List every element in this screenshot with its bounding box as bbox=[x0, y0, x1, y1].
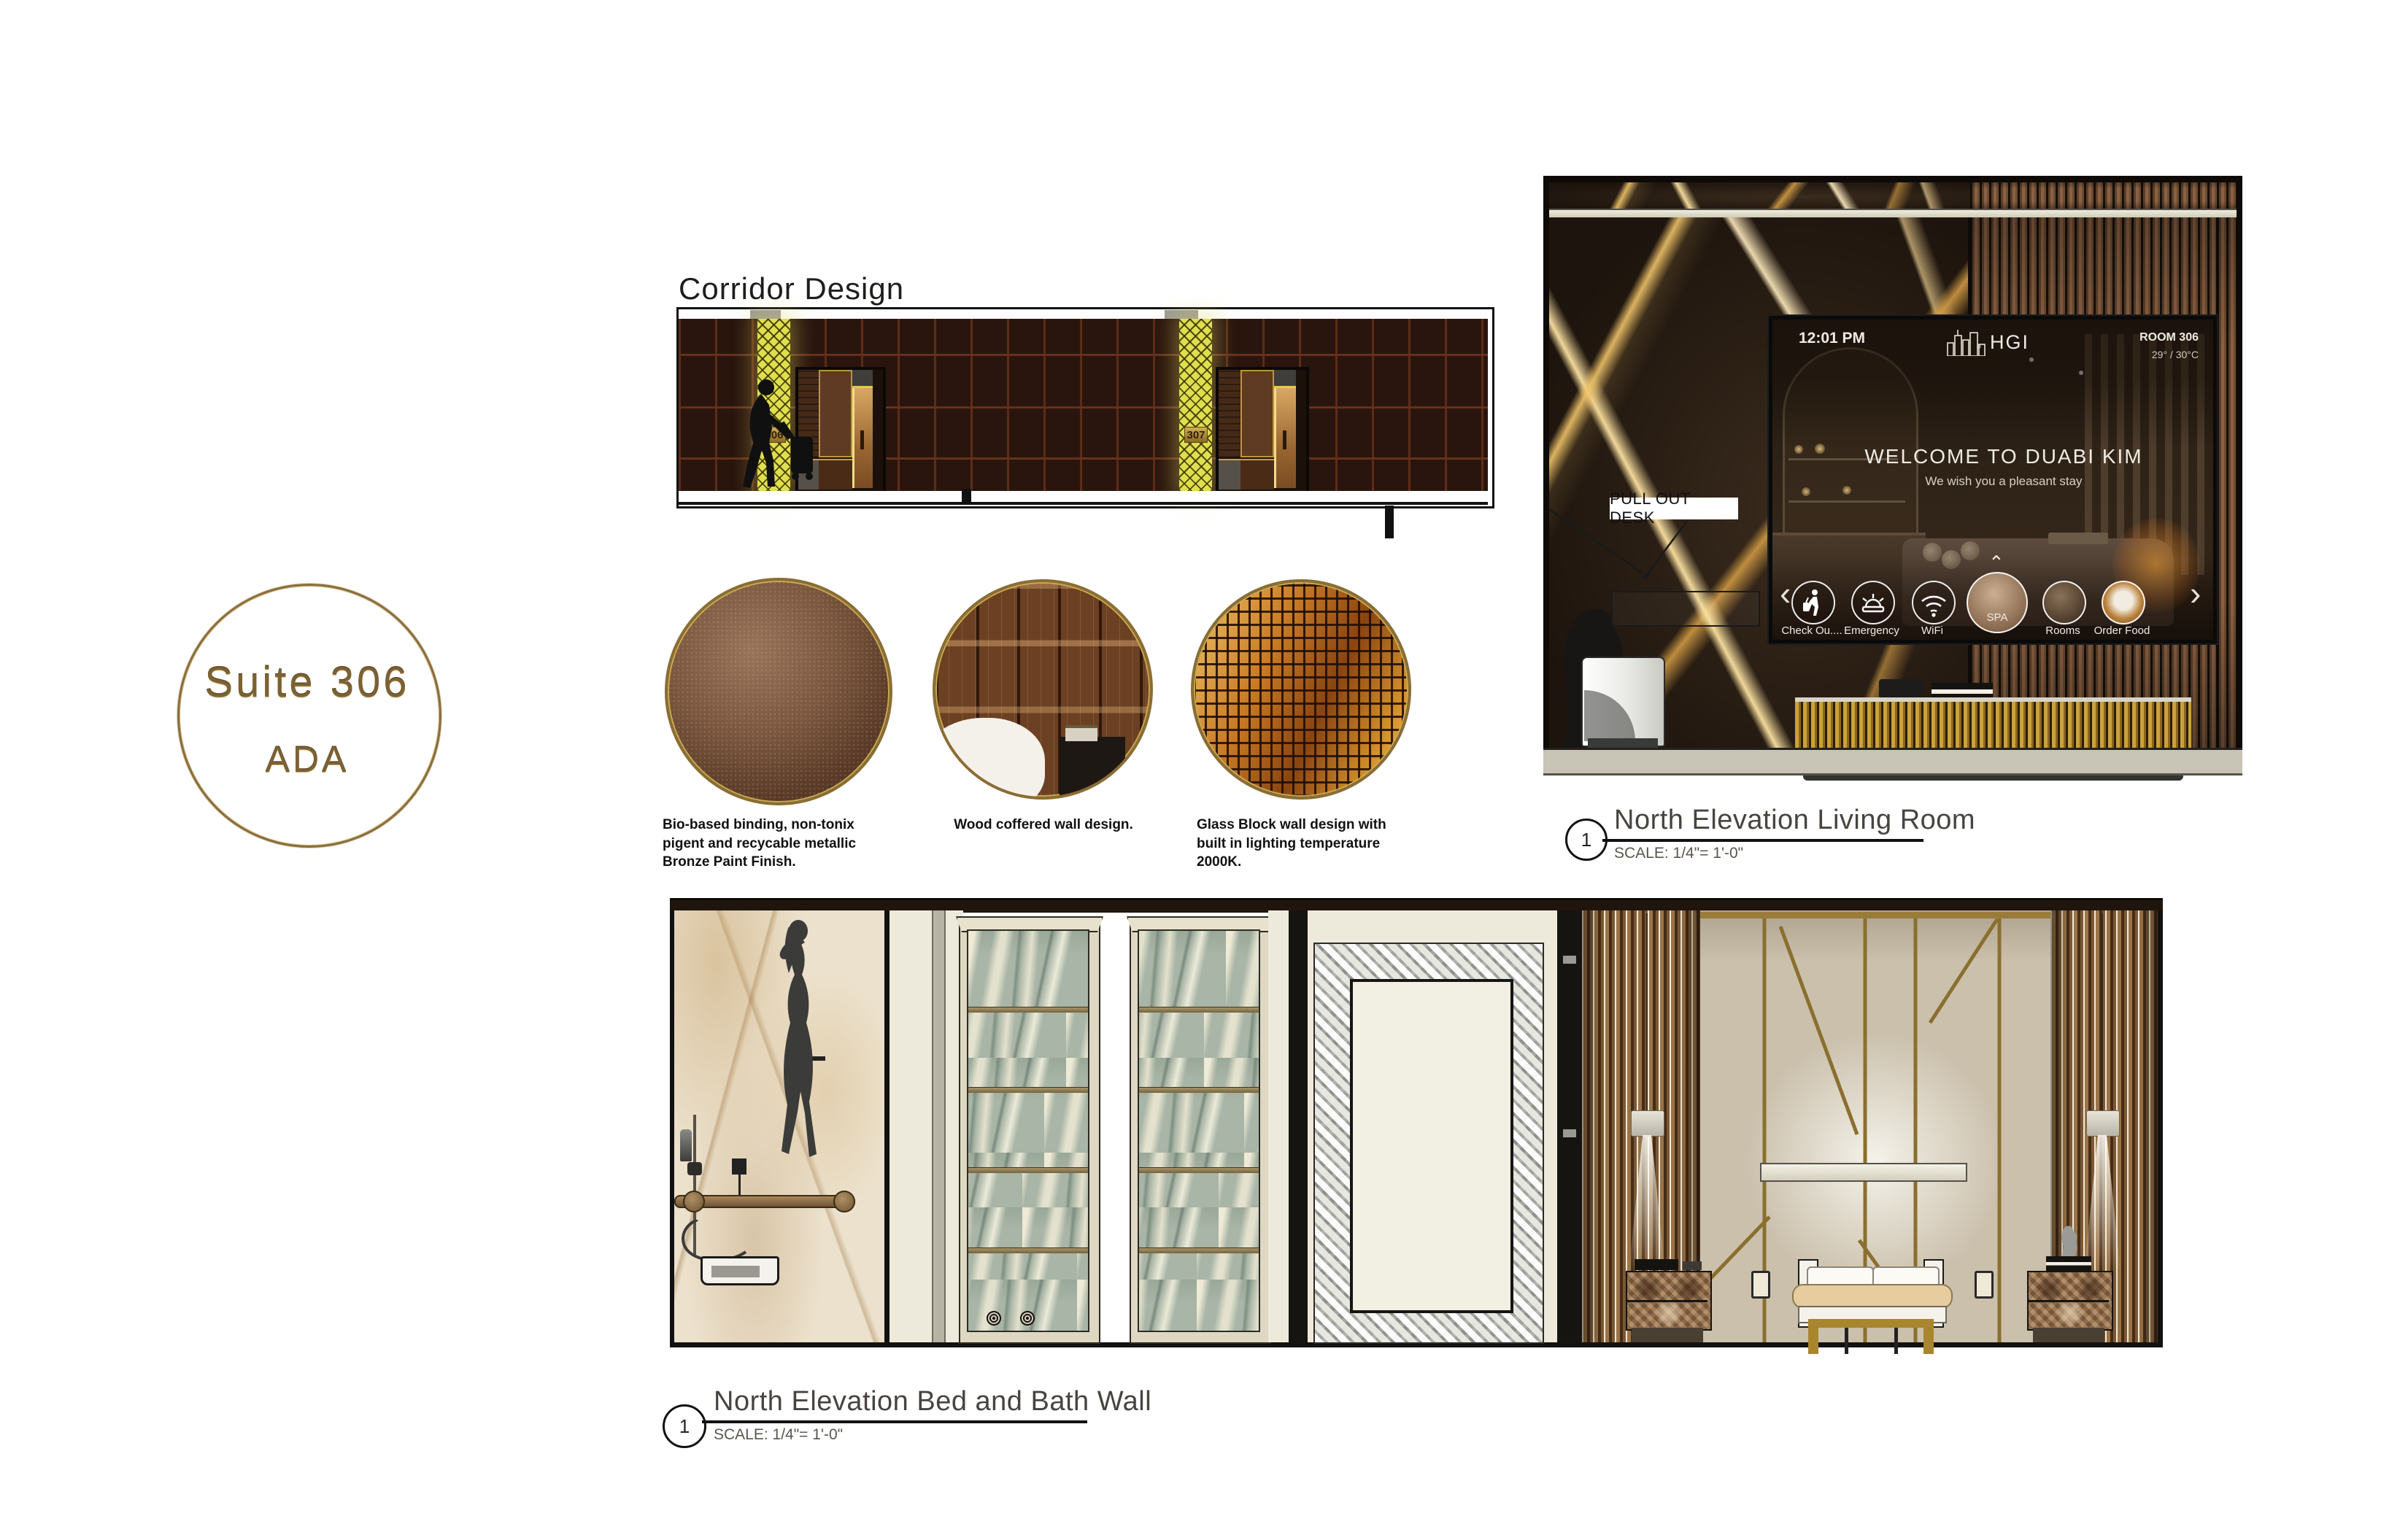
door-transom bbox=[1274, 370, 1296, 388]
menu-wifi-button[interactable] bbox=[1912, 581, 1956, 624]
panel-crown bbox=[956, 916, 1103, 932]
door-kick-left bbox=[1219, 459, 1240, 490]
bed-bath-drawing-number: 1 bbox=[663, 1404, 706, 1448]
corridor-title: Corridor Design bbox=[679, 271, 904, 306]
wall-divider bbox=[1289, 910, 1308, 1342]
menu-rooms-button[interactable] bbox=[2042, 581, 2086, 624]
shower-control bbox=[732, 1158, 746, 1175]
divider-handle bbox=[1563, 956, 1576, 964]
spa-down-chevron[interactable]: ⌄ bbox=[1988, 629, 2004, 640]
spa-up-chevron[interactable]: ⌃ bbox=[1988, 552, 2004, 574]
drawer-divider bbox=[2029, 1300, 2109, 1302]
green-marble-panel-2 bbox=[1130, 918, 1271, 1344]
bed-bath-title: North Elevation Bed and Bath Wall bbox=[714, 1386, 1151, 1417]
crystal-mirror-frame bbox=[1313, 943, 1544, 1344]
wall-divider bbox=[1557, 910, 1582, 1342]
glass-block-strip-307 bbox=[1179, 319, 1212, 491]
corridor-vent-left bbox=[750, 310, 781, 319]
hotel-skyline-icon bbox=[1945, 327, 1988, 356]
stacked-books bbox=[2046, 1256, 2091, 1271]
callout-arrows bbox=[1540, 487, 1773, 589]
bath-wall-gap bbox=[1268, 910, 1289, 1342]
menu-order-food-label: Order Food bbox=[2091, 624, 2153, 637]
door-sidelite bbox=[1274, 388, 1296, 488]
nightstand-base bbox=[1632, 1328, 1703, 1342]
bed-leg-gold bbox=[1808, 1328, 1818, 1354]
panel-crown bbox=[1127, 916, 1274, 932]
sconce-cord bbox=[2102, 913, 2103, 1110]
walking-guest-silhouette bbox=[721, 376, 838, 494]
bed-leg bbox=[1845, 1328, 1848, 1354]
stacked-books bbox=[1932, 683, 1993, 697]
living-room-drawing-number: 1 bbox=[1565, 819, 1608, 861]
nightstand-shape bbox=[1060, 737, 1125, 797]
living-room-scale: SCALE: 1/4"= 1'-0" bbox=[1614, 845, 1743, 862]
stool-shadow bbox=[1584, 690, 1635, 741]
wifi-icon bbox=[1913, 582, 1954, 623]
marble-slab bbox=[968, 1173, 1088, 1247]
nightstand-left bbox=[1626, 1271, 1712, 1331]
corridor-wall: 306 307 bbox=[679, 319, 1488, 491]
statue-figurine bbox=[2058, 1224, 2078, 1258]
door-stile bbox=[1219, 370, 1240, 457]
bed-leg-gold bbox=[1923, 1328, 1934, 1354]
pillow-shape bbox=[933, 718, 1045, 800]
telephone bbox=[1879, 679, 1924, 697]
door-handle bbox=[1283, 430, 1286, 449]
living-room-title-underline bbox=[1602, 839, 1923, 842]
nightstand-phone bbox=[1683, 1261, 1702, 1270]
floating-ledge bbox=[1760, 1163, 1967, 1182]
green-marble-panel-1 bbox=[959, 918, 1100, 1344]
suite-logo bbox=[177, 584, 441, 848]
suite-logo-line1: Suite 306 bbox=[185, 658, 430, 707]
corridor-vent-right bbox=[1165, 310, 1198, 319]
slat-band bbox=[1970, 182, 2237, 209]
rosette-knob bbox=[986, 1310, 1002, 1326]
books-shape bbox=[1065, 725, 1097, 741]
living-room-title: North Elevation Living Room bbox=[1614, 805, 1975, 836]
rosette-knob bbox=[1019, 1310, 1035, 1326]
menu-order-food-button[interactable] bbox=[2102, 581, 2145, 624]
bath-wall-gap bbox=[890, 910, 963, 1342]
panel-marble bbox=[1139, 931, 1259, 1331]
checkout-icon bbox=[1793, 582, 1834, 623]
living-room-elevation: 12:01 PM HGI ROOM 306 29° / 30°C WELCOME… bbox=[1543, 176, 2242, 773]
marble-slab bbox=[1139, 1253, 1259, 1331]
marble-slab bbox=[968, 931, 1088, 1007]
tv-room-number: ROOM 306 bbox=[2089, 331, 2199, 344]
pull-out-desk-outline bbox=[1611, 591, 1760, 627]
ceiling-band bbox=[1549, 182, 2237, 209]
bed-bolster bbox=[1792, 1284, 1953, 1309]
glass-block-swatch bbox=[1191, 579, 1411, 800]
bathing-silhouette bbox=[756, 915, 842, 1163]
wall-sconce-left bbox=[1631, 1110, 1664, 1137]
drawer-divider bbox=[1627, 1300, 1707, 1302]
switch-plate bbox=[1751, 1271, 1770, 1299]
bed-leg bbox=[1894, 1328, 1898, 1354]
tv-subheadline: We wish you a pleasant stay bbox=[1847, 474, 2161, 489]
menu-emergency-button[interactable] bbox=[1851, 581, 1895, 624]
bed-bath-title-underline bbox=[702, 1420, 1087, 1423]
tv-headline: WELCOME TO DUABI KIM bbox=[1847, 445, 2161, 468]
marble-slab bbox=[1139, 1093, 1259, 1167]
seat-cushion bbox=[711, 1266, 760, 1277]
menu-rooms-label: Rooms bbox=[2032, 624, 2094, 637]
corridor-datum-mark bbox=[1385, 506, 1394, 538]
bed-bath-scale: SCALE: 1/4"= 1'-0" bbox=[714, 1426, 843, 1444]
marble-slab bbox=[1139, 1013, 1259, 1087]
corridor-elevation: 306 307 bbox=[676, 307, 1494, 508]
bed-bath-elevation bbox=[670, 898, 2163, 1347]
suite-307-door bbox=[1216, 367, 1309, 497]
room-number-plaque: 307 bbox=[1184, 427, 1208, 443]
bronze-paint-swatch bbox=[665, 578, 892, 805]
rail-knob bbox=[687, 1162, 702, 1175]
grab-bar-flange bbox=[833, 1191, 855, 1212]
bed-headboard-wall bbox=[1582, 910, 2163, 1342]
corridor-baseboard bbox=[679, 491, 1488, 505]
wood-coffered-caption: Wood coffered wall design. bbox=[941, 816, 1146, 835]
wall-sconce-right bbox=[2086, 1110, 2120, 1137]
shower-onyx-wall bbox=[670, 910, 890, 1342]
bronze-paint-caption: Bio-based binding, non-tonix pigent and … bbox=[663, 816, 890, 872]
door-panel bbox=[1240, 370, 1274, 457]
menu-checkout-button[interactable] bbox=[1791, 581, 1835, 624]
hand-shower bbox=[680, 1129, 692, 1161]
bed-frame-gold bbox=[1808, 1319, 1934, 1328]
presentation-board: Suite 306 ADA Corridor Design 306 307 bbox=[0, 0, 2408, 1532]
fold-down-seat bbox=[701, 1256, 779, 1285]
emergency-icon bbox=[1853, 582, 1894, 623]
baseboard-joint-mark bbox=[962, 489, 971, 505]
marble-slab bbox=[968, 1013, 1088, 1087]
nightstand-device bbox=[1635, 1259, 1678, 1270]
living-room-baseboard bbox=[1543, 748, 2242, 775]
sconce-cord bbox=[1646, 913, 1648, 1110]
mirror-inner-panel bbox=[1350, 979, 1513, 1313]
grab-bar-flange bbox=[683, 1191, 705, 1212]
switch-plate bbox=[1975, 1271, 1994, 1299]
smart-tv: 12:01 PM HGI ROOM 306 29° / 30°C WELCOME… bbox=[1769, 316, 2217, 643]
menu-next-chevron[interactable]: › bbox=[2190, 576, 2201, 610]
nightstand-base bbox=[2033, 1328, 2104, 1342]
wood-coffered-swatch bbox=[933, 579, 1153, 800]
tv-temperature: 29° / 30°C bbox=[2089, 349, 2199, 360]
menu-spa-button[interactable]: SPA bbox=[1967, 572, 2028, 633]
marble-slab bbox=[1139, 931, 1259, 1007]
door-handle bbox=[860, 430, 864, 449]
menu-checkout-label: Check Ou.... bbox=[1781, 624, 1842, 637]
suite-logo-line2: ADA bbox=[185, 738, 430, 781]
corridor-ceiling-strip bbox=[679, 309, 1488, 319]
divider-handle bbox=[1563, 1129, 1576, 1137]
desk-stool bbox=[1581, 657, 1665, 747]
door-transom bbox=[852, 370, 873, 388]
door-kick-right bbox=[1240, 459, 1274, 490]
panel-marble bbox=[968, 931, 1088, 1331]
menu-prev-chevron[interactable]: ‹ bbox=[1780, 576, 1791, 610]
menu-emergency-label: Emergency bbox=[1841, 624, 1902, 637]
menu-spa-label: SPA bbox=[1968, 611, 2026, 624]
tv-screen: 12:01 PM HGI ROOM 306 29° / 30°C WELCOME… bbox=[1772, 320, 2213, 640]
nightstand-right bbox=[2027, 1271, 2113, 1331]
mirror-wall bbox=[1308, 910, 1557, 1342]
marble-slab bbox=[1139, 1173, 1259, 1247]
tv-clock: 12:01 PM bbox=[1799, 330, 1865, 347]
menu-wifi-label: WiFi bbox=[1902, 624, 1963, 637]
glass-block-caption: Glass Block wall design with built in li… bbox=[1197, 816, 1416, 872]
metal-channel bbox=[932, 910, 946, 1342]
wall-seam bbox=[679, 354, 1488, 356]
marble-slab bbox=[968, 1093, 1088, 1167]
marble-band bbox=[1549, 182, 1970, 209]
door-sidelite bbox=[852, 388, 873, 488]
tv-brand: HGI bbox=[1990, 331, 2029, 354]
